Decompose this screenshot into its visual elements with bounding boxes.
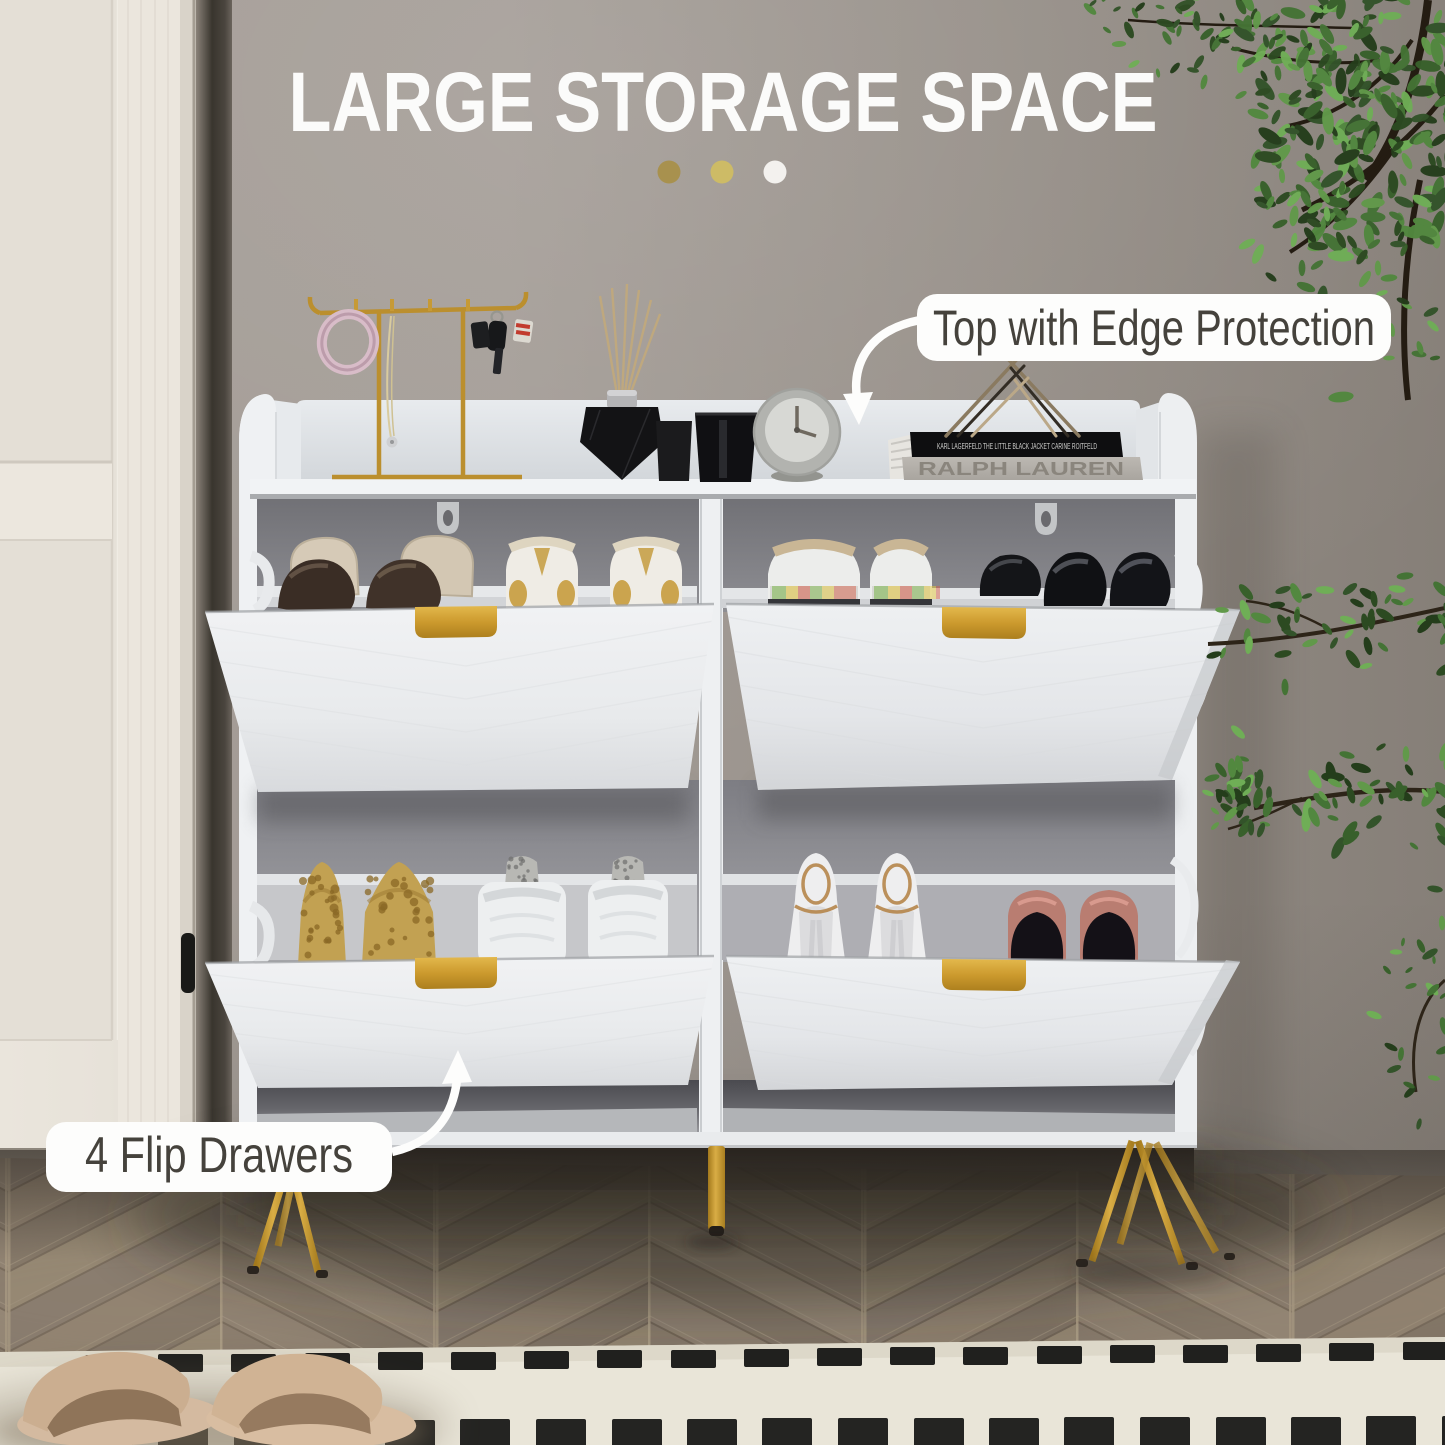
svg-text:LARGE STORAGE SPACE: LARGE STORAGE SPACE — [289, 55, 1158, 149]
svg-text:KARL LAGERFELD THE LITTLE BLA: KARL LAGERFELD THE LITTLE BLACK JACKET C… — [937, 441, 1097, 451]
svg-text:Top with Edge Protection: Top with Edge Protection — [933, 300, 1375, 356]
svg-text:4 Flip Drawers: 4 Flip Drawers — [85, 1127, 353, 1183]
svg-text:RALPH LAUREN: RALPH LAUREN — [918, 459, 1124, 479]
